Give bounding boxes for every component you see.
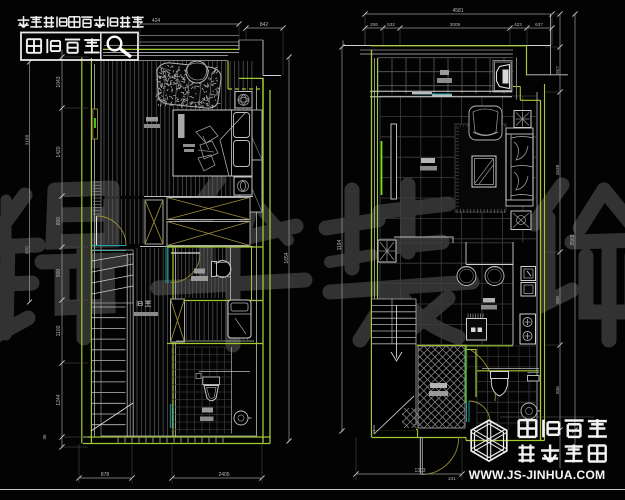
svg-text:878: 878	[101, 472, 110, 478]
svg-text:800: 800	[56, 217, 62, 226]
svg-text:870: 870	[25, 246, 30, 254]
svg-text:1194: 1194	[337, 239, 343, 250]
svg-text:1303: 1303	[414, 468, 425, 474]
svg-text:424: 424	[152, 18, 161, 24]
svg-text:532: 532	[387, 22, 395, 27]
svg-text:900: 900	[56, 269, 62, 278]
svg-text:423: 423	[514, 22, 522, 27]
svg-text:3168: 3168	[25, 134, 30, 145]
svg-text:938: 938	[555, 296, 560, 304]
svg-text:917: 917	[555, 66, 560, 74]
svg-text:3005: 3005	[450, 22, 461, 27]
svg-text:241: 241	[448, 476, 456, 481]
svg-text:1244: 1244	[56, 394, 62, 405]
svg-text:3568: 3568	[570, 234, 576, 245]
svg-text:4581: 4581	[452, 8, 463, 14]
svg-text:1043: 1043	[56, 76, 62, 87]
svg-text:206: 206	[370, 22, 378, 27]
svg-text:36: 36	[42, 434, 47, 440]
svg-text:2405: 2405	[218, 472, 229, 478]
svg-text:1654: 1654	[284, 252, 290, 263]
svg-text:1420: 1420	[56, 146, 62, 157]
svg-text:1100: 1100	[56, 325, 62, 336]
svg-text:846: 846	[555, 386, 560, 394]
svg-text:1638: 1638	[555, 164, 560, 175]
svg-text:842: 842	[260, 22, 269, 28]
svg-text:WWW.JS-JINHUA.COM: WWW.JS-JINHUA.COM	[469, 468, 606, 482]
svg-text:637: 637	[535, 22, 543, 27]
